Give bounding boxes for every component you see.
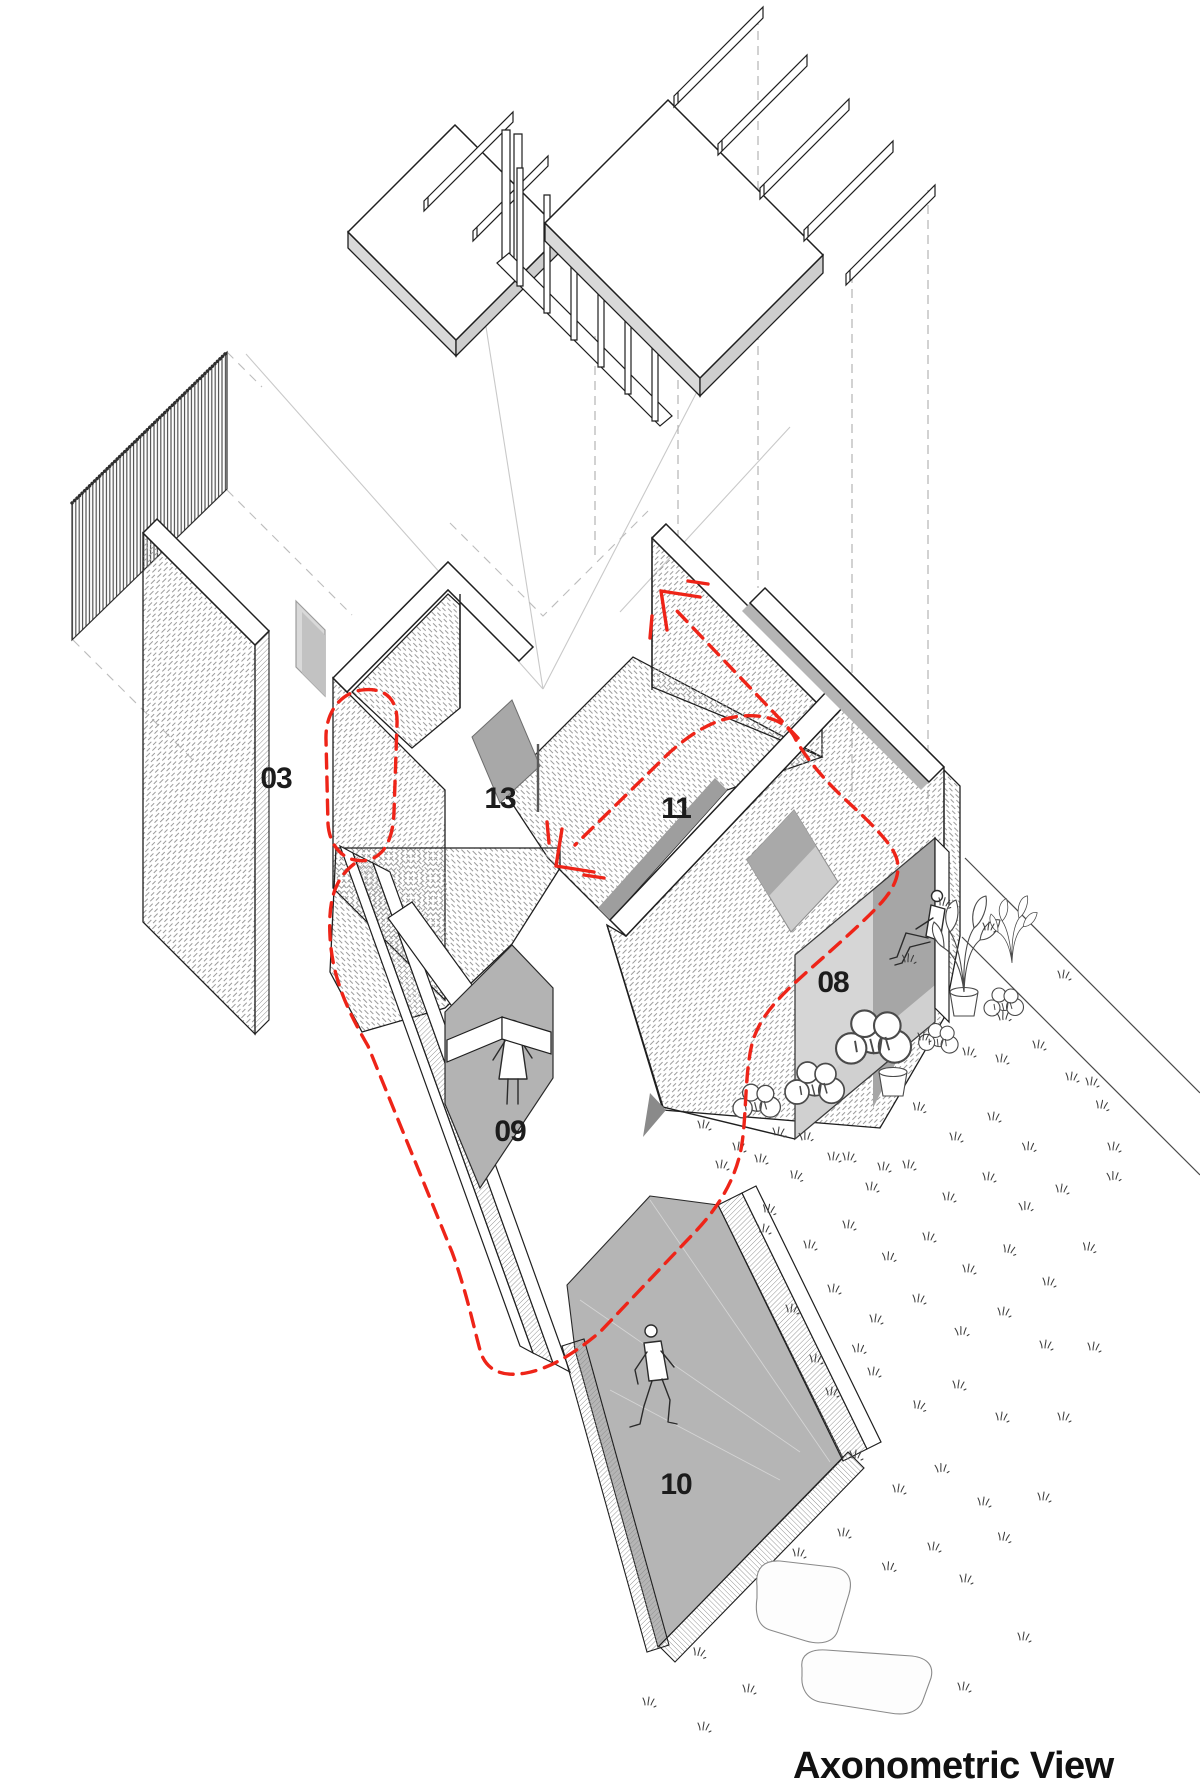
grass-tuft (1096, 1100, 1110, 1111)
grass-tuft (1022, 1141, 1036, 1152)
grass-tuft (1066, 1072, 1079, 1082)
grass-tuft (843, 1220, 856, 1230)
grass-tuft (953, 1380, 966, 1390)
grass-tuft (1003, 1244, 1017, 1256)
person-head (645, 1325, 657, 1337)
grass-tuft (693, 1647, 707, 1659)
grass-tuft (1056, 1184, 1069, 1194)
grass-tuft (882, 1251, 896, 1262)
grass-tuft (1058, 970, 1071, 980)
grass-tuft (1019, 1201, 1033, 1213)
grass-tuft (998, 1532, 1012, 1543)
grass-tuft (963, 1264, 976, 1274)
grass-tuft (870, 1314, 883, 1324)
grass-tuft (958, 1682, 971, 1692)
grass-tuft (983, 1172, 996, 1182)
grass-tuft (935, 1463, 949, 1475)
grass-tuft (1107, 1171, 1121, 1183)
grass-tuft (838, 1528, 851, 1538)
label-09: 09 (494, 1115, 526, 1148)
grass-tuft (852, 1343, 866, 1354)
grass-tuft (928, 1542, 941, 1552)
grass-tuft (1058, 1412, 1071, 1422)
rafter (804, 141, 893, 241)
wall-03-edge (255, 631, 269, 1034)
rafter (760, 99, 849, 199)
grass-tuft (1033, 1040, 1046, 1050)
grass-tuft (943, 1192, 956, 1202)
label-11: 11 (661, 792, 691, 825)
label-13: 13 (484, 782, 516, 815)
grass-tuft (903, 1160, 916, 1170)
grass-tuft (913, 1294, 926, 1304)
grass-tuft (716, 1160, 729, 1170)
mid-level-09 (330, 846, 570, 1372)
grass-tuft (1043, 1277, 1056, 1287)
stone (756, 1561, 850, 1643)
grass-tuft (988, 1112, 1001, 1122)
grass-tuft (923, 1232, 936, 1242)
grass-tuft (755, 1154, 768, 1164)
grass-tuft (960, 1574, 973, 1584)
grass-tuft (996, 1054, 1009, 1064)
stud (517, 168, 523, 286)
grass-tuft (878, 1162, 891, 1172)
label-03: 03 (260, 762, 292, 795)
stud-post (502, 130, 510, 268)
rafter (846, 185, 935, 285)
door-reveal-shadow (302, 612, 325, 696)
grass-tuft (955, 1326, 969, 1338)
grass-tuft (743, 1684, 756, 1694)
grass-tuft (996, 1412, 1009, 1422)
garden-edge-lower (962, 937, 1200, 1175)
diagram-title: Axonometric View (793, 1745, 1115, 1787)
grass-tuft (1108, 1142, 1121, 1152)
grass-tuft (893, 1484, 906, 1494)
grass-tuft (793, 1548, 806, 1558)
roof-slab-left (348, 125, 563, 356)
rafter (718, 55, 807, 155)
grass-tuft (998, 1307, 1011, 1317)
grass-tuft (963, 1047, 976, 1057)
stone (802, 1650, 932, 1714)
grass-tuft (913, 1102, 927, 1113)
grass-tuft (978, 1497, 991, 1507)
grass-tuft (828, 1284, 841, 1294)
stones (756, 1561, 931, 1714)
grass-tuft (913, 1400, 927, 1412)
grass-tuft (1038, 1492, 1051, 1502)
grass-tuft (804, 1240, 817, 1250)
grass-tuft (1086, 1077, 1099, 1087)
wall-leaf-03 (143, 519, 269, 1034)
grass-tuft (1083, 1242, 1097, 1253)
rafter (674, 7, 763, 107)
grass-tuft (1018, 1632, 1031, 1642)
plant-pot (879, 1068, 907, 1097)
grass-tuft (843, 1152, 856, 1162)
person-head (932, 891, 943, 902)
slab-top (348, 125, 563, 340)
grass-tuft (882, 1561, 896, 1572)
grass-tuft (868, 1367, 881, 1377)
label-10: 10 (660, 1468, 692, 1501)
grass-tuft (790, 1170, 804, 1182)
grass-tuft (1088, 1342, 1101, 1352)
grass-tuft (643, 1697, 656, 1707)
diagram-canvas: 03 13 11 08 09 10 Axonometric View (0, 0, 1200, 1792)
door-opening-03 (296, 601, 325, 696)
label-08: 08 (817, 966, 849, 999)
grass-tuft (1040, 1340, 1053, 1350)
grass-tuft (950, 1132, 963, 1142)
axonometric-diagram: 03 13 11 08 09 10 Axonometric View (0, 0, 1200, 1792)
grass-tuft (866, 1182, 879, 1192)
grass-tuft (698, 1120, 711, 1130)
grass-tuft (698, 1722, 711, 1732)
grass-tuft (828, 1152, 841, 1162)
stud (544, 195, 550, 313)
